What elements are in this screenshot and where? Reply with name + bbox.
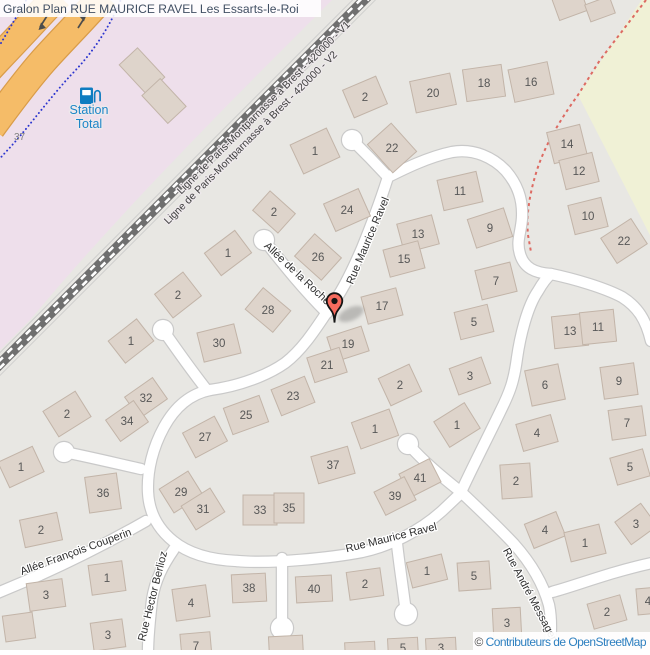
svg-text:23: 23 [287,391,300,403]
svg-text:5: 5 [471,317,477,329]
svg-text:7: 7 [493,276,499,288]
svg-text:7: 7 [193,641,199,650]
svg-text:4: 4 [188,598,195,610]
svg-text:2: 2 [175,290,181,302]
svg-text:Station: Station [70,103,109,117]
svg-text:3: 3 [467,371,473,383]
svg-text:4: 4 [534,428,541,440]
svg-text:2: 2 [362,579,368,591]
svg-text:22: 22 [618,236,631,248]
svg-text:3: 3 [43,590,49,602]
svg-text:39: 39 [389,491,402,503]
svg-text:2: 2 [271,207,277,219]
svg-text:18: 18 [478,78,491,90]
svg-text:© Contributeurs de OpenStreetM: © Contributeurs de OpenStreetMap [475,635,647,649]
svg-text:29: 29 [175,487,188,499]
svg-text:40: 40 [308,584,321,596]
svg-text:19: 19 [342,339,355,351]
svg-text:6: 6 [542,380,548,392]
svg-text:26: 26 [312,252,325,264]
svg-text:1: 1 [225,248,231,260]
svg-text:9: 9 [487,223,493,235]
svg-text:17: 17 [376,301,389,313]
svg-text:10: 10 [582,211,595,223]
svg-text:12: 12 [573,166,586,178]
svg-text:9: 9 [616,376,622,388]
svg-text:2: 2 [38,525,44,537]
svg-text:4: 4 [645,596,650,608]
svg-text:13: 13 [412,229,425,241]
svg-text:1: 1 [104,573,110,585]
svg-text:4: 4 [542,525,549,537]
svg-text:20: 20 [427,88,440,100]
svg-text:1: 1 [372,424,378,436]
svg-text:2: 2 [362,92,368,104]
svg-text:32: 32 [140,393,153,405]
svg-text:34: 34 [121,416,134,428]
svg-text:11: 11 [592,322,604,334]
svg-text:14: 14 [561,139,574,151]
svg-text:11: 11 [454,186,466,198]
svg-text:27: 27 [199,432,212,444]
svg-text:2: 2 [397,380,403,392]
svg-text:1: 1 [128,336,134,348]
svg-text:3: 3 [438,643,444,650]
svg-text:41: 41 [414,473,427,485]
svg-text:1: 1 [424,566,430,578]
svg-text:37: 37 [14,132,26,143]
svg-text:2: 2 [64,409,70,421]
svg-text:1: 1 [454,420,460,432]
svg-text:22: 22 [386,143,399,155]
svg-text:Gralon Plan RUE MAURICE RAVEL: Gralon Plan RUE MAURICE RAVEL Les Essart… [3,2,299,16]
svg-text:1: 1 [312,146,318,158]
svg-text:35: 35 [283,503,296,515]
svg-text:3: 3 [633,519,639,531]
svg-text:13: 13 [564,326,577,338]
svg-text:5: 5 [400,643,406,650]
svg-text:28: 28 [262,305,275,317]
svg-text:21: 21 [321,360,334,372]
svg-text:2: 2 [513,476,519,488]
svg-text:2: 2 [604,607,610,619]
svg-text:7: 7 [624,418,630,430]
svg-text:25: 25 [240,410,253,422]
svg-text:31: 31 [197,504,210,516]
svg-text:3: 3 [504,618,510,630]
svg-text:5: 5 [471,571,477,583]
svg-text:1: 1 [18,462,24,474]
svg-text:24: 24 [341,205,354,217]
svg-text:33: 33 [254,505,267,517]
svg-text:5: 5 [627,462,633,474]
svg-text:30: 30 [213,338,226,350]
svg-text:16: 16 [525,77,538,89]
svg-text:1: 1 [582,538,588,550]
svg-text:3: 3 [105,630,111,642]
svg-text:37: 37 [327,460,340,472]
svg-text:Total: Total [76,117,102,131]
svg-text:38: 38 [243,583,256,595]
svg-text:15: 15 [398,254,411,266]
svg-text:36: 36 [97,488,110,500]
